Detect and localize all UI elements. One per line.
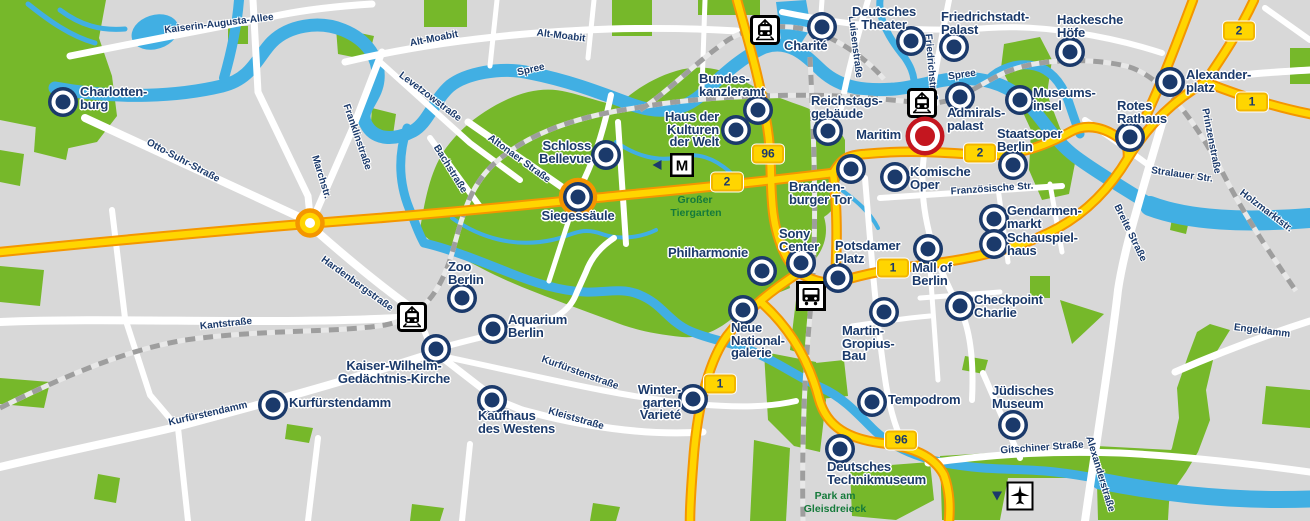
s-bahn-station-icon[interactable] <box>750 15 780 45</box>
poi-label-philharmonie: Philharmonie <box>668 247 748 260</box>
poi-label-mall-of-berlin: Mall of Berlin <box>912 262 952 287</box>
street-label-prinzenstra-e: Prinzenstraße <box>1199 107 1222 174</box>
poi-label-martin-gropius-bau: Martin- Gropius- Bau <box>842 325 895 363</box>
street-label-otto-suhr-stra-e: Otto-Suhr-Straße <box>145 137 222 185</box>
road-badge-96-0: 96 <box>752 145 784 164</box>
road-badge-1-6: 1 <box>704 375 736 394</box>
poi-label-zoo-berlin: Zoo Berlin <box>448 261 484 286</box>
road-badge-2-2: 2 <box>964 144 996 163</box>
street-label-franklinstra-e: Franklinstraße <box>341 103 374 172</box>
street-label-kantstra-e: Kantstraße <box>199 316 252 332</box>
poi-label-juedisches-museum: Jüdisches Museum <box>992 385 1054 410</box>
poi-marker-wintergarten-variete[interactable] <box>682 388 705 411</box>
poi-label-deutsches-technikmuseum: Deutsches Technikmuseum <box>827 461 926 486</box>
poi-label-wintergarten-variete: Winter- garten Varieté <box>638 384 681 422</box>
poi-marker-aquarium-berlin[interactable] <box>482 318 505 341</box>
park-label-tiergarten: Tiergarten <box>670 207 721 219</box>
street-label-levetzowstra-e: Levetzowstraße <box>397 70 464 124</box>
poi-label-schauspielhaus: Schauspiel- haus <box>1007 232 1078 257</box>
poi-marker-schauspielhaus[interactable] <box>983 233 1006 256</box>
poi-marker-charite[interactable] <box>811 16 834 39</box>
svg-text:M: M <box>676 158 689 175</box>
poi-marker-juedisches-museum[interactable] <box>1002 414 1025 437</box>
poi-label-kurfuerstendamm: Kurfürstendamm <box>289 397 391 410</box>
poi-label-staatsoper-berlin: Staatsoper Berlin <box>997 128 1062 153</box>
street-label-kaiserin-augusta-allee: Kaiserin-Augusta-Allee <box>164 12 275 36</box>
poi-marker-siegessaeule[interactable] <box>567 186 590 209</box>
poi-label-checkpoint-charlie: Checkpoint Charlie <box>974 294 1043 319</box>
poi-label-charite: Charité <box>784 40 827 53</box>
poi-label-rotes-rathaus: Rotes Rathaus <box>1117 100 1167 125</box>
street-label-alexanderstra-e: Alexanderstraße <box>1083 435 1116 513</box>
poi-marker-neue-nationalgalerie[interactable] <box>732 299 755 322</box>
poi-marker-bundeskanzleramt[interactable] <box>747 99 770 122</box>
poi-label-maritim: Maritim <box>856 129 901 142</box>
street-label-engeldamm: Engeldamm <box>1233 322 1291 340</box>
street-label-holzmarktstr-: Holzmarktstr. <box>1237 188 1294 235</box>
poi-marker-tempodrom[interactable] <box>861 391 884 414</box>
poi-label-gendarmenmarkt: Gendarmen- markt <box>1007 205 1082 230</box>
poi-marker-komische-oper[interactable] <box>884 166 907 189</box>
poi-label-haus-der-kulturen-der-welt: Haus der Kulturen der Welt <box>665 111 719 149</box>
street-label-breite-stra-e: Breite Straße <box>1111 203 1148 264</box>
poi-label-charlottenburg: Charlotten- burg <box>80 86 147 111</box>
park-label-park-am: Park am <box>815 490 856 502</box>
poi-marker-martin-gropius-bau[interactable] <box>873 301 896 324</box>
street-label-hardenbergstra-e: Hardenbergstraße <box>319 254 395 314</box>
triangle-down-icon <box>992 492 1002 501</box>
map-overlay: Kaiserin-Augusta-AlleeAlt-MoabitAlt-Moab… <box>0 0 1310 521</box>
water-label-spree: Spree <box>947 68 976 83</box>
poi-marker-checkpoint-charlie[interactable] <box>949 295 972 318</box>
poi-marker-mall-of-berlin[interactable] <box>917 238 940 261</box>
poi-marker-hackesche-hoefe[interactable] <box>1059 41 1082 64</box>
triangle-left-icon <box>653 160 662 170</box>
airport-icon[interactable] <box>1007 482 1034 511</box>
poi-marker-kurfuerstendamm[interactable] <box>262 394 285 417</box>
poi-marker-deutsches-theater[interactable] <box>900 30 923 53</box>
berlin-city-map: Kaiserin-Augusta-AlleeAlt-MoabitAlt-Moab… <box>0 0 1310 521</box>
poi-marker-alexanderplatz[interactable] <box>1159 71 1182 94</box>
poi-label-museumsinsel: Museums- insel <box>1033 87 1096 112</box>
street-label-stralauer-str-: Stralauer Str. <box>1150 165 1213 185</box>
poi-marker-philharmonie[interactable] <box>751 260 774 283</box>
poi-marker-schloss-bellevue[interactable] <box>595 144 618 167</box>
water-label-spree: Spree <box>516 62 546 79</box>
poi-label-kaiser-wilhelm-gedaechtnis-kirche: Kaiser-Wilhelm- Gedächtnis-Kirche <box>338 360 450 385</box>
street-label-marchstr-: Marchstr. <box>309 154 333 200</box>
poi-label-kaufhaus-des-westens: Kaufhaus des Westens <box>478 410 555 435</box>
poi-marker-deutsches-technikmuseum[interactable] <box>829 438 852 461</box>
bus-station-icon[interactable] <box>796 281 826 311</box>
poi-marker-potsdamer-platz[interactable] <box>827 267 850 290</box>
street-label-alt-moabit: Alt-Moabit <box>409 29 459 49</box>
poi-marker-rotes-rathaus[interactable] <box>1119 126 1142 149</box>
poi-label-bundeskanzleramt: Bundes- kanzleramt <box>699 73 765 98</box>
s-bahn-station-icon[interactable] <box>397 302 427 332</box>
park-label-gleisdreieck: Gleisdreieck <box>804 503 866 515</box>
poi-label-komische-oper: Komische Oper <box>910 166 971 191</box>
poi-label-aquarium-berlin: Aquarium Berlin <box>508 314 567 339</box>
street-label-alt-moabit: Alt-Moabit <box>536 28 586 45</box>
poi-marker-gendarmenmarkt[interactable] <box>983 208 1006 231</box>
poi-marker-staatsoper-berlin[interactable] <box>1002 154 1025 177</box>
poi-marker-haus-der-kulturen-der-welt[interactable] <box>725 119 748 142</box>
road-badge-96-7: 96 <box>885 431 917 450</box>
road-badge-2-1: 2 <box>711 173 743 192</box>
poi-marker-zoo-berlin[interactable] <box>451 287 474 310</box>
street-label-gitschiner-stra-e: Gitschiner Straße <box>1000 440 1084 457</box>
poi-marker-sony-center[interactable] <box>790 252 813 275</box>
road-badge-1-4: 1 <box>1236 93 1268 112</box>
poi-label-neue-nationalgalerie: Neue National- galerie <box>731 322 785 360</box>
park-label-gro-er: Großer <box>677 194 712 206</box>
poi-marker-reichstagsgebaeude[interactable] <box>817 120 840 143</box>
metro-station-icon[interactable]: M <box>670 153 694 177</box>
poi-label-hackesche-hoefe: Hackesche Höfe <box>1057 14 1123 39</box>
poi-label-deutsches-theater: Deutsches Theater <box>852 6 916 31</box>
poi-marker-maritim[interactable] <box>910 121 940 151</box>
poi-label-sony-center: Sony Center <box>779 228 819 253</box>
poi-label-brandenburger-tor: Branden- burger Tor <box>789 181 852 206</box>
poi-label-tempodrom: Tempodrom <box>888 394 960 407</box>
road-badge-2-3: 2 <box>1223 22 1255 41</box>
poi-label-siegessaeule: Siegessäule <box>542 210 615 223</box>
street-label-kurf-rstenstra-e: Kurfürstenstraße <box>540 354 620 392</box>
street-label-bachstra-e: Bachstraße <box>431 143 469 195</box>
poi-label-alexanderplatz: Alexander- platz <box>1186 69 1251 94</box>
s-bahn-station-icon[interactable] <box>907 88 937 118</box>
poi-marker-museumsinsel[interactable] <box>1009 89 1032 112</box>
street-label-kurf-rstendamm: Kurfürstendamm <box>168 400 249 429</box>
poi-marker-friedrichstadt-palast[interactable] <box>943 36 966 59</box>
poi-marker-charlottenburg[interactable] <box>52 91 75 114</box>
poi-label-schloss-bellevue: Schloss Bellevue <box>539 140 591 165</box>
street-label-kleiststra-e: Kleiststraße <box>547 406 605 432</box>
poi-label-friedrichstadt-palast: Friedrichstadt- Palast <box>941 11 1029 36</box>
poi-label-potsdamer-platz: Potsdamer Platz <box>835 240 900 265</box>
poi-label-reichstagsgebaeude: Reichstags- gebäude <box>811 95 883 120</box>
poi-marker-brandenburger-tor[interactable] <box>840 158 863 181</box>
